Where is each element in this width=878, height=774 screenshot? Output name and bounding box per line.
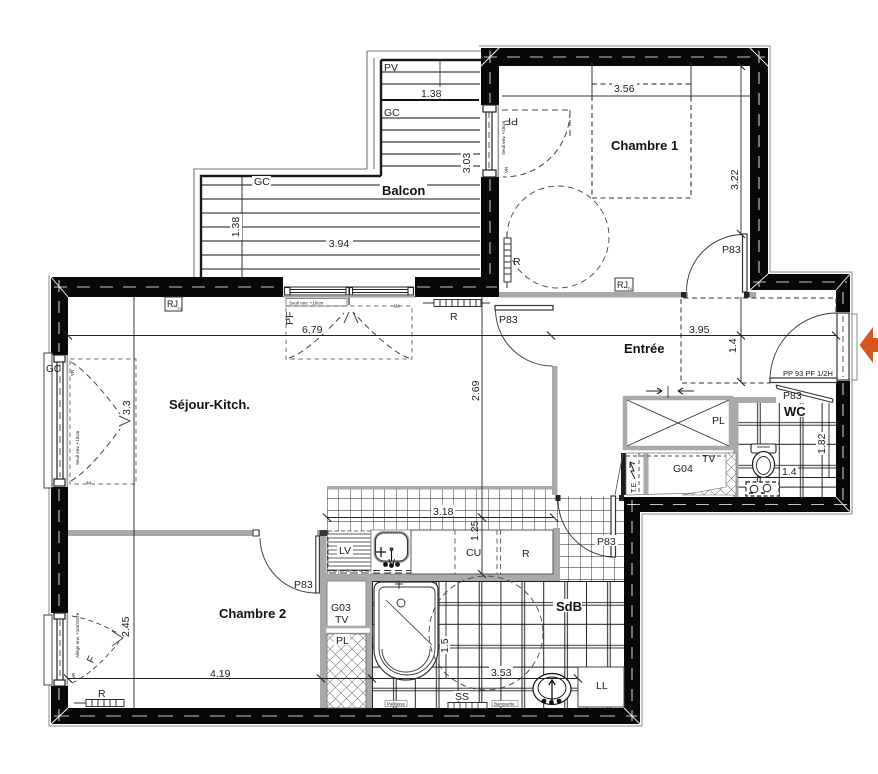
svg-text:1.25: 1.25 bbox=[469, 520, 481, 541]
svg-text:1.4: 1.4 bbox=[782, 466, 797, 478]
svg-text:PF: PF bbox=[284, 312, 296, 325]
svg-text:TV: TV bbox=[335, 614, 348, 626]
svg-text:2.45: 2.45 bbox=[120, 616, 132, 637]
svg-text:VR: VR bbox=[71, 672, 76, 679]
svg-text:3.03: 3.03 bbox=[461, 153, 473, 174]
svg-text:PV: PV bbox=[384, 62, 398, 74]
svg-text:1.38: 1.38 bbox=[421, 88, 442, 100]
svg-text:WC: WC bbox=[784, 404, 806, 419]
svg-text:P83: P83 bbox=[722, 244, 741, 256]
svg-text:T.E.: T.E. bbox=[631, 481, 638, 493]
svg-text:G03: G03 bbox=[331, 602, 351, 614]
svg-text:Allège env. +1m/2Dcm: Allège env. +1m/2Dcm bbox=[75, 613, 80, 658]
svg-text:PF: PF bbox=[505, 115, 518, 127]
svg-text:Entrée: Entrée bbox=[624, 341, 664, 356]
svg-text:2.69: 2.69 bbox=[470, 380, 482, 401]
svg-text:Balcon: Balcon bbox=[382, 183, 425, 198]
svg-text:SS: SS bbox=[455, 691, 469, 703]
svg-text:TV: TV bbox=[702, 453, 715, 465]
svg-text:PP 93 PF 1/2H: PP 93 PF 1/2H bbox=[783, 369, 833, 378]
svg-text:R: R bbox=[522, 548, 530, 560]
svg-text:Seuil env. +15cm: Seuil env. +15cm bbox=[75, 430, 80, 465]
svg-text:Paillasse: Paillasse bbox=[387, 702, 406, 707]
svg-text:R: R bbox=[98, 688, 106, 700]
svg-text:Seuil env. +10cm: Seuil env. +10cm bbox=[289, 301, 324, 306]
svg-text:3.22: 3.22 bbox=[729, 169, 741, 190]
svg-text:TV: TV bbox=[177, 306, 182, 311]
svg-text:3.18: 3.18 bbox=[433, 506, 454, 518]
svg-text:P83: P83 bbox=[294, 579, 313, 591]
svg-text:Séjour-Kitch.: Séjour-Kitch. bbox=[169, 397, 250, 412]
svg-text:Chambre 1: Chambre 1 bbox=[611, 138, 678, 153]
svg-text:GC: GC bbox=[384, 107, 400, 119]
svg-text:Banquette: Banquette bbox=[494, 702, 515, 707]
svg-text:LL: LL bbox=[596, 680, 608, 692]
svg-text:PL: PL bbox=[712, 415, 725, 427]
svg-text:3.56: 3.56 bbox=[614, 83, 635, 95]
svg-text:SdB: SdB bbox=[556, 599, 582, 614]
svg-text:CU: CU bbox=[466, 547, 481, 559]
svg-text:Chambre 2: Chambre 2 bbox=[219, 606, 286, 621]
svg-text:3.53: 3.53 bbox=[491, 667, 512, 679]
svg-text:G04: G04 bbox=[673, 463, 693, 475]
svg-text:1.38: 1.38 bbox=[230, 217, 242, 238]
svg-text:VR: VR bbox=[504, 166, 509, 173]
svg-text:1.4: 1.4 bbox=[727, 338, 739, 353]
svg-text:GC: GC bbox=[254, 176, 270, 188]
svg-text:3.95: 3.95 bbox=[689, 324, 710, 336]
svg-text:R: R bbox=[513, 256, 521, 268]
svg-text:3.3: 3.3 bbox=[121, 400, 133, 415]
svg-text:P83: P83 bbox=[783, 390, 802, 402]
svg-text:TV: TV bbox=[627, 286, 632, 291]
svg-text:1.82: 1.82 bbox=[816, 433, 828, 454]
svg-text:6.79: 6.79 bbox=[302, 324, 323, 336]
svg-text:GC: GC bbox=[46, 364, 61, 375]
svg-text:3.94: 3.94 bbox=[329, 238, 350, 250]
svg-text:LV: LV bbox=[339, 545, 351, 557]
svg-text:1.5: 1.5 bbox=[439, 638, 451, 653]
svg-text:P83: P83 bbox=[597, 536, 616, 548]
svg-text:P83: P83 bbox=[499, 314, 518, 326]
svg-text:4.19: 4.19 bbox=[210, 668, 231, 680]
svg-text:VR: VR bbox=[70, 369, 75, 376]
svg-text:PL: PL bbox=[336, 635, 349, 647]
svg-text:R: R bbox=[450, 311, 458, 323]
